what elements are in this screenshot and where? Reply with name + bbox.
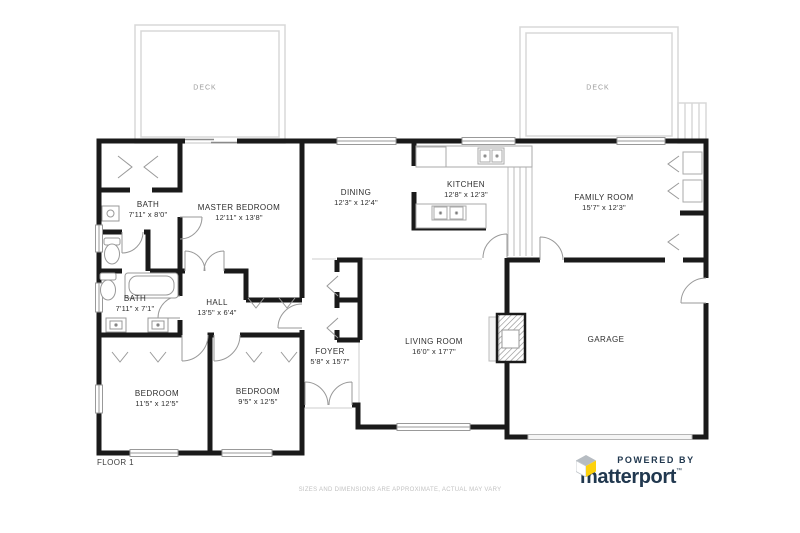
room-name: BEDROOM <box>236 387 280 397</box>
room-dims: 7'11" x 8'0" <box>129 210 168 220</box>
room-dims: 13'5" x 6'4" <box>197 308 236 318</box>
room-label-bedroom-2: BEDROOM 9'5" x 12'5" <box>236 387 280 407</box>
room-label-bedroom-1: BEDROOM 11'5" x 12'5" <box>135 389 179 409</box>
room-name: FAMILY ROOM <box>574 193 633 203</box>
floor-label: FLOOR 1 <box>97 458 134 467</box>
room-label-hall: HALL 13'5" x 6'4" <box>197 298 236 318</box>
room-name: DECK <box>586 83 609 92</box>
matterport-logo: POWERED BY matterport ™ <box>576 455 710 487</box>
floorplan-page: DECK DECK BATH 7'11" x 8'0" MASTER BEDRO… <box>0 0 800 533</box>
toilet-bowl <box>101 280 116 300</box>
room-label-living-room: LIVING ROOM 16'0" x 17'7" <box>405 337 463 357</box>
fireplace <box>489 314 525 362</box>
room-name: LIVING ROOM <box>405 337 463 347</box>
room-name: HALL <box>197 298 236 308</box>
room-label-bath-2: BATH 7'11" x 7'1" <box>116 294 155 314</box>
room-label-master-bedroom: MASTER BEDROOM 12'11" x 13'8" <box>198 203 281 223</box>
room-name: MASTER BEDROOM <box>198 203 281 213</box>
room-dims: 16'0" x 17'7" <box>405 347 463 357</box>
toilet-bowl <box>105 244 120 264</box>
room-dims: 5'8" x 15'7" <box>310 357 349 367</box>
room-label-deck-right: DECK <box>586 83 609 92</box>
room-dims: 11'5" x 12'5" <box>135 399 179 409</box>
room-dims: 12'8" x 12'3" <box>444 190 488 200</box>
room-label-garage: GARAGE <box>588 335 625 345</box>
deck-outlines <box>135 25 706 143</box>
matterport-cube-icon <box>576 455 596 477</box>
room-label-deck-left: DECK <box>193 83 216 92</box>
disclaimer-text: SIZES AND DIMENSIONS ARE APPROXIMATE, AC… <box>299 487 502 493</box>
room-label-foyer: FOYER 5'8" x 15'7" <box>310 347 349 367</box>
room-label-dining: DINING 12'3" x 12'4" <box>334 188 378 208</box>
room-name: KITCHEN <box>444 180 488 190</box>
floorplan-drawing <box>0 0 800 533</box>
fireplace-box <box>502 330 519 348</box>
room-name: FOYER <box>310 347 349 357</box>
walls <box>97 139 709 456</box>
room-name: BEDROOM <box>135 389 179 399</box>
sliding-door <box>185 140 237 143</box>
room-label-kitchen: KITCHEN 12'8" x 12'3" <box>444 180 488 200</box>
room-name: DINING <box>334 188 378 198</box>
fridge <box>416 147 446 167</box>
powered-by-text: POWERED BY <box>602 455 710 465</box>
trademark-symbol: ™ <box>676 468 682 474</box>
room-name: DECK <box>193 83 216 92</box>
toilet-tank <box>100 273 116 280</box>
room-name: GARAGE <box>588 335 625 345</box>
room-dims: 9'5" x 12'5" <box>236 397 280 407</box>
room-dims: 12'11" x 13'8" <box>198 213 281 223</box>
room-label-bath-1: BATH 7'11" x 8'0" <box>129 200 168 220</box>
family-room-builtins <box>683 152 702 202</box>
room-dims: 7'11" x 7'1" <box>116 304 155 314</box>
room-dims: 15'7" x 12'3" <box>574 203 633 213</box>
room-dims: 12'3" x 12'4" <box>334 198 378 208</box>
garage-door <box>528 435 692 440</box>
room-label-family-room: FAMILY ROOM 15'7" x 12'3" <box>574 193 633 213</box>
room-name: BATH <box>116 294 155 304</box>
room-name: BATH <box>129 200 168 210</box>
